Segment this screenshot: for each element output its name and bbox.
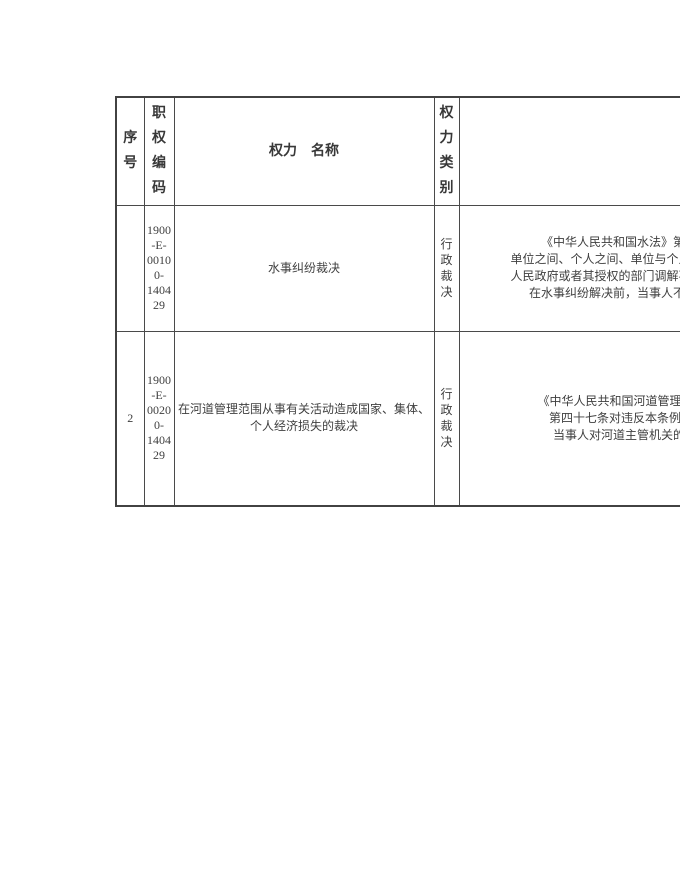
cell-serial-number: 2 <box>116 331 144 506</box>
legal-basis-line: 第四十七条对违反本条例规定，造 <box>460 410 680 427</box>
header-power-code-label: 职权编码 <box>152 101 166 202</box>
header-power-name-label: 权力 名称 <box>269 144 339 159</box>
cell-power-category: 行政裁决 <box>434 331 459 506</box>
power-category-label: 行政裁决 <box>441 386 453 450</box>
cell-serial-number <box>116 205 144 331</box>
cell-power-name: 水事纠纷裁决 <box>174 205 434 331</box>
power-category-label: 行政裁决 <box>441 236 453 300</box>
legal-basis-line: 人民政府或者其授权的部门调解不成的，当 <box>460 268 680 285</box>
table-row: 2 1900 -E- 0020 0- 1404 29 在河道管理范围从事有关活动… <box>116 331 680 506</box>
header-power-category: 权力类别 <box>434 97 459 205</box>
legal-basis-line: 当事人对河道主管机关的处理决定 <box>460 427 680 444</box>
header-power-name: 权力 名称 <box>174 97 434 205</box>
cell-legal-basis: 《中华人民共和国河道管理条例》（国 第四十七条对违反本条例规定，造 当事人对河道… <box>459 331 680 506</box>
legal-basis-line: 《中华人民共和国水法》第五十七条 <box>460 234 680 251</box>
table-header-row: 序号 职权编码 权力 名称 权力类别 <box>116 97 680 205</box>
cell-power-code: 1900 -E- 0010 0- 1404 29 <box>144 205 174 331</box>
legal-basis-line: 单位之间、个人之间、单位与个人之间发生 <box>460 251 680 268</box>
table-row: 1900 -E- 0010 0- 1404 29 水事纠纷裁决 行政裁决 《中华… <box>116 205 680 331</box>
header-serial-number: 序号 <box>116 97 144 205</box>
legal-basis-line: 在水事纠纷解决前，当事人不得单方面 <box>460 285 680 302</box>
header-legal-basis <box>459 97 680 205</box>
header-serial-number-label: 序号 <box>123 126 137 176</box>
cell-power-name: 在河道管理范围从事有关活动造成国家、集体、 个人经济损失的裁决 <box>174 331 434 506</box>
document-page: { "colors": { "background": "#ffffff", "… <box>0 0 680 880</box>
legal-basis-line: 《中华人民共和国河道管理条例》（国 <box>460 393 680 410</box>
header-power-category-label: 权力类别 <box>440 101 454 202</box>
cell-legal-basis: 《中华人民共和国水法》第五十七条 单位之间、个人之间、单位与个人之间发生 人民政… <box>459 205 680 331</box>
cell-power-category: 行政裁决 <box>434 205 459 331</box>
cell-power-code: 1900 -E- 0020 0- 1404 29 <box>144 331 174 506</box>
power-list-table: 序号 职权编码 权力 名称 权力类别 1900 -E- 0010 0- 1404… <box>115 96 680 507</box>
header-power-code: 职权编码 <box>144 97 174 205</box>
